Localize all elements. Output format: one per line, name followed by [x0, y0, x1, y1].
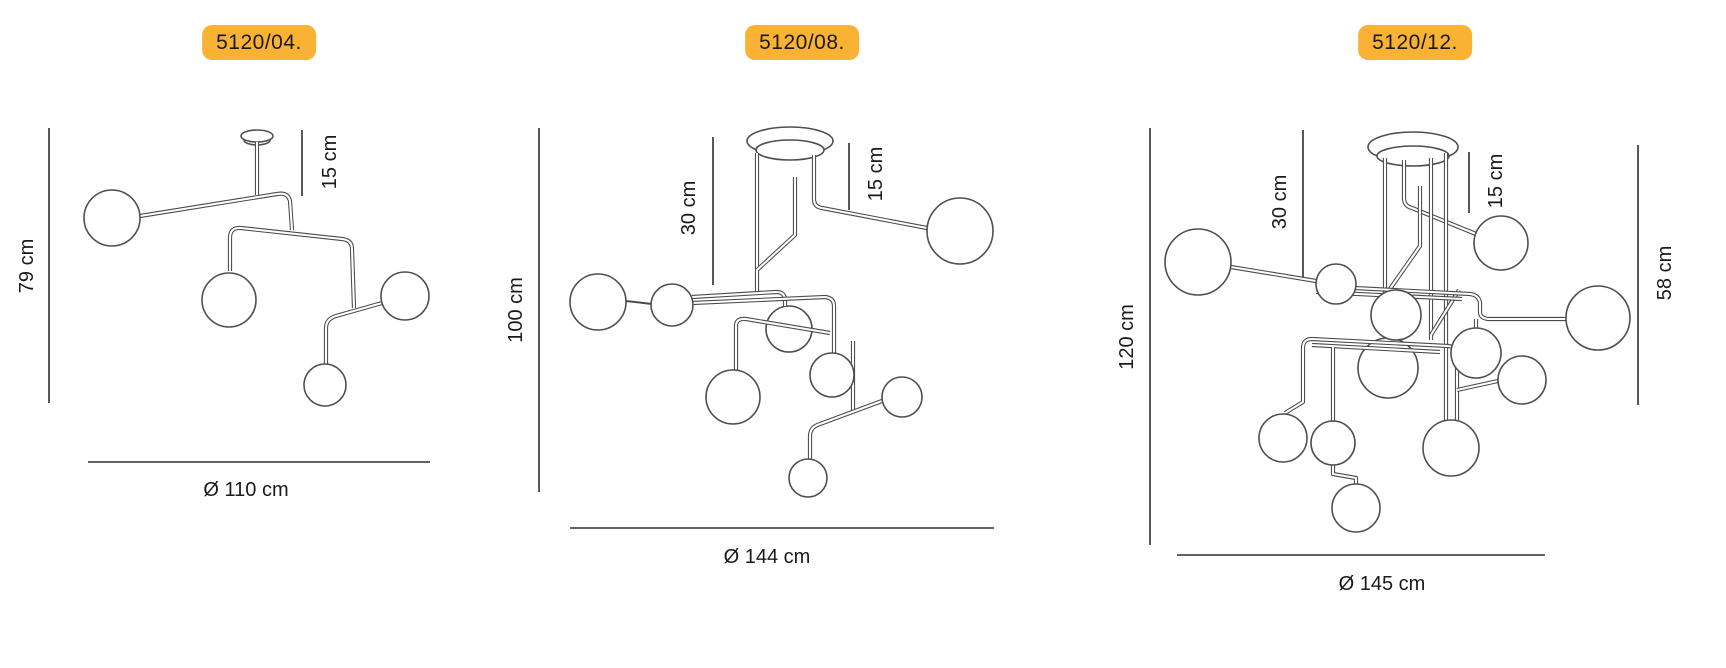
globe [84, 190, 140, 246]
diameter-label: Ø 145 cm [1339, 573, 1426, 595]
globe [706, 370, 760, 424]
ceiling-canopy [241, 130, 273, 142]
fixture-drawing [1165, 132, 1630, 532]
side-height-label: 58 cm [1654, 246, 1676, 300]
arm-tubes [140, 142, 382, 364]
globe [1311, 421, 1355, 465]
fixture-panel-5120-08: 100 cm 30 cm 15 cm Ø 144 cm [480, 0, 1010, 668]
fixture-drawing [84, 130, 429, 406]
globe [1451, 328, 1501, 378]
globe [1165, 229, 1231, 295]
globe [1566, 286, 1630, 350]
height-label: 79 cm [16, 239, 38, 293]
ceiling-drop-label: 15 cm [319, 135, 341, 189]
globe [381, 272, 429, 320]
fixture-drawing [570, 127, 993, 497]
rod-length-label: 30 cm [678, 181, 700, 235]
spec-sheet: 5120/04. 5120/08. 5120/12. 79 cm 15 cm Ø… [0, 0, 1726, 668]
globe [789, 459, 827, 497]
globe [1423, 420, 1479, 476]
fixture-panel-5120-12: 120 cm 30 cm 15 cm 58 cm Ø 145 cm [1010, 0, 1726, 668]
globe [1259, 414, 1307, 462]
rod-length-label: 30 cm [1269, 175, 1291, 229]
globe [1316, 264, 1356, 304]
globe [1474, 216, 1528, 270]
globe [651, 284, 693, 326]
globe-link-rod [626, 301, 652, 304]
ceiling-canopy [1377, 146, 1449, 166]
globe [882, 377, 922, 417]
height-label: 120 cm [1116, 304, 1138, 370]
diameter-label: Ø 110 cm [203, 479, 288, 501]
ceiling-drop-label: 15 cm [1485, 154, 1507, 208]
fixture-panel-5120-04: 79 cm 15 cm Ø 110 cm [0, 0, 480, 668]
ceiling-drop-label: 15 cm [865, 147, 887, 201]
globe [927, 198, 993, 264]
globe [304, 364, 346, 406]
height-label: 100 cm [505, 277, 527, 343]
globe [202, 273, 256, 327]
globe [1498, 356, 1546, 404]
diameter-label: Ø 144 cm [724, 546, 811, 568]
globe [570, 274, 626, 330]
globe [1371, 290, 1421, 340]
globe [1332, 484, 1380, 532]
globe [810, 353, 854, 397]
